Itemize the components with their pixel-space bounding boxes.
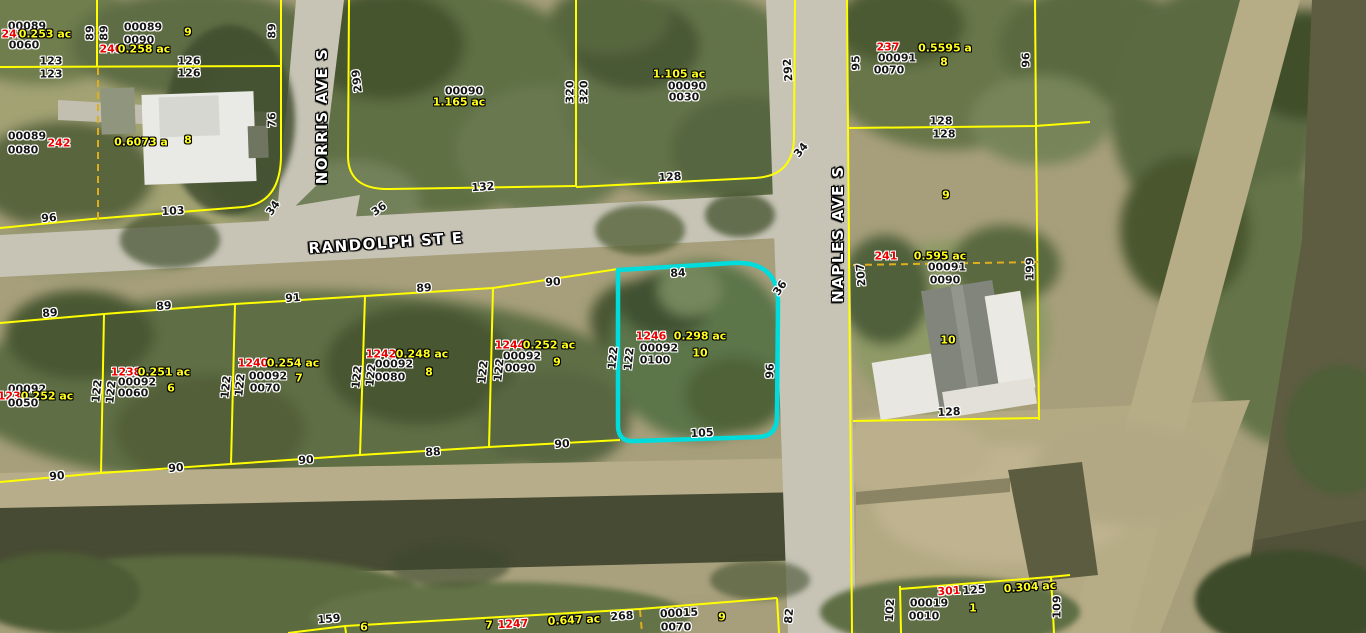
parcel-id-dimension-label: 103: [161, 205, 185, 217]
parcel-id-dimension-label: 00091: [878, 53, 916, 64]
parcel-id-dimension-label: 00089: [124, 22, 162, 33]
highlight-dim-bottom: 105: [690, 427, 714, 439]
parcel-id-dimension-label: 0080: [375, 372, 406, 383]
area-lot-label: 7: [295, 373, 303, 384]
parcel-id-dimension-label: 00092: [503, 351, 541, 362]
parcel-id-dimension-label: 128: [930, 116, 953, 127]
area-lot-label: 9: [718, 612, 726, 623]
parcel-id-dimension-label: 0070: [874, 65, 905, 76]
area-lot-label: 1.105 ac: [653, 69, 706, 80]
area-lot-label: 8: [184, 135, 192, 146]
area-lot-label: 1.165 ac: [433, 97, 486, 108]
highlight-strap-1: 00092: [640, 343, 678, 354]
street-label-norris: NORRIS AVE S: [313, 48, 331, 184]
parcel-id-dimension-label: 102: [884, 598, 896, 622]
parcel-id-dimension-label: 159: [317, 613, 341, 626]
parcel-id-dimension-label: 0080: [8, 145, 39, 156]
parcel-id-dimension-label: 128: [658, 171, 682, 184]
parcel-id-dimension-label: 89: [156, 300, 172, 312]
parcel-number-label: 242: [48, 138, 71, 149]
parcel-number-label: 1240: [238, 358, 269, 369]
parcel-id-dimension-label: 89: [416, 282, 432, 294]
parcel-id-dimension-label: 122: [219, 375, 232, 399]
parcel-id-dimension-label: 76: [267, 112, 278, 127]
parcel-id-dimension-label: 96: [41, 212, 57, 224]
parcel-id-dimension-label: 292: [782, 58, 795, 82]
parcel-number-label: 241: [875, 251, 898, 262]
parcel-id-dimension-label: 132: [471, 181, 495, 194]
parcel-id-dimension-label: 89: [85, 25, 96, 40]
area-lot-label: 9: [942, 190, 950, 201]
parcel-id-dimension-label: 125: [962, 584, 986, 597]
area-lot-label: 0.5595 a: [918, 43, 972, 54]
highlight-area: 0.298 ac: [674, 331, 727, 342]
highlight-lot: 10: [692, 348, 707, 359]
area-lot-label: 6: [167, 383, 175, 394]
area-lot-label: 8: [940, 57, 948, 68]
parcel-id-dimension-label: 126: [178, 56, 201, 67]
parcel-id-dimension-label: 109: [1052, 596, 1063, 619]
parcel-id-dimension-label: 0050: [8, 398, 39, 409]
parcel-id-dimension-label: 0090: [930, 275, 961, 286]
highlight-dim-top: 84: [670, 267, 686, 279]
aerial-map[interactable]: RANDOLPH ST ENORRIS AVE SNAPLES AVE S000…: [0, 0, 1366, 633]
parcel-id-dimension-label: 128: [933, 129, 956, 140]
parcel-id-dimension-label: 123: [40, 56, 63, 67]
highlight-parcel-number: 1246: [636, 331, 667, 342]
parcel-id-dimension-label: 00092: [375, 359, 413, 370]
parcel-id-dimension-label: 90: [554, 438, 570, 450]
area-lot-label: 10: [940, 335, 955, 346]
parcel-id-dimension-label: 299: [350, 69, 364, 93]
area-lot-label: 0.254 ac: [267, 358, 320, 369]
parcel-id-dimension-label: 122: [233, 373, 246, 397]
parcel-id-dimension-label: 126: [178, 68, 201, 79]
parcel-id-dimension-label: 00015: [660, 607, 699, 620]
parcel-id-dimension-label: 00091: [928, 262, 966, 273]
parcel-id-dimension-label: 268: [610, 610, 634, 623]
parcel-number-label: 301: [937, 585, 961, 598]
parcel-id-dimension-label: 89: [267, 23, 278, 38]
parcel-id-dimension-label: 122: [476, 360, 489, 384]
area-lot-label: 6: [360, 622, 368, 633]
highlight-dim-right: 96: [764, 363, 776, 379]
parcel-boundary-lines: [0, 0, 1090, 633]
parcel-id-dimension-label: 0070: [250, 383, 281, 394]
parcel-id-dimension-label: 89: [42, 307, 58, 319]
area-lot-label: 0.258 ac: [118, 44, 171, 55]
parcel-id-dimension-label: 123: [40, 69, 63, 80]
parcel-id-dimension-label: 122: [622, 347, 635, 371]
area-lot-label: 0.6073 a: [114, 137, 168, 148]
parcel-id-dimension-label: 320: [565, 81, 576, 104]
parcel-id-dimension-label: 122: [90, 379, 103, 403]
parcel-id-dimension-label: 82: [783, 608, 795, 624]
parcel-id-dimension-label: 95: [851, 55, 862, 70]
parcel-number-label: 1247: [497, 618, 528, 631]
area-lot-label: 9: [184, 27, 192, 38]
parcel-id-dimension-label: 122: [350, 365, 363, 389]
area-lot-label: 1: [969, 603, 977, 614]
parcel-id-dimension-label: 0090: [505, 363, 536, 374]
area-lot-label: 8: [425, 367, 433, 378]
parcel-id-dimension-label: 128: [937, 406, 961, 418]
parcel-id-dimension-label: 320: [579, 81, 590, 104]
highlight-strap-2: 0100: [640, 355, 671, 366]
parcel-id-dimension-label: 122: [606, 346, 619, 370]
parcel-id-dimension-label: 0010: [909, 611, 940, 622]
parcel-id-dimension-label: 90: [49, 470, 65, 482]
parcel-id-dimension-label: 90: [168, 462, 184, 474]
parcel-id-dimension-label: 00019: [910, 598, 948, 609]
area-lot-label: 0.647 ac: [547, 613, 600, 627]
parcel-id-dimension-label: 88: [425, 446, 441, 458]
street-label-naples: NAPLES AVE S: [829, 165, 847, 302]
parcel-id-dimension-label: 199: [1025, 258, 1036, 281]
parcel-id-dimension-label: 0060: [118, 388, 149, 399]
parcel-id-dimension-label: 207: [855, 263, 868, 287]
parcel-id-dimension-label: 00092: [249, 371, 287, 382]
parcel-id-dimension-label: 00089: [8, 131, 46, 142]
area-lot-label: 0.304 ac: [1003, 580, 1056, 595]
parcel-id-dimension-label: 90: [545, 276, 561, 288]
parcel-id-dimension-label: 0030: [669, 92, 700, 103]
area-lot-label: 7: [485, 620, 493, 631]
parcel-id-dimension-label: 122: [104, 380, 117, 404]
parcel-id-dimension-label: 0070: [661, 622, 692, 633]
parcel-id-dimension-label: 91: [285, 292, 301, 304]
parcel-id-dimension-label: 0060: [9, 40, 40, 51]
parcel-id-dimension-label: 96: [1021, 52, 1032, 67]
area-lot-label: 9: [553, 357, 561, 368]
parcel-id-dimension-label: 89: [99, 25, 110, 40]
parcel-id-dimension-label: 90: [298, 454, 314, 466]
